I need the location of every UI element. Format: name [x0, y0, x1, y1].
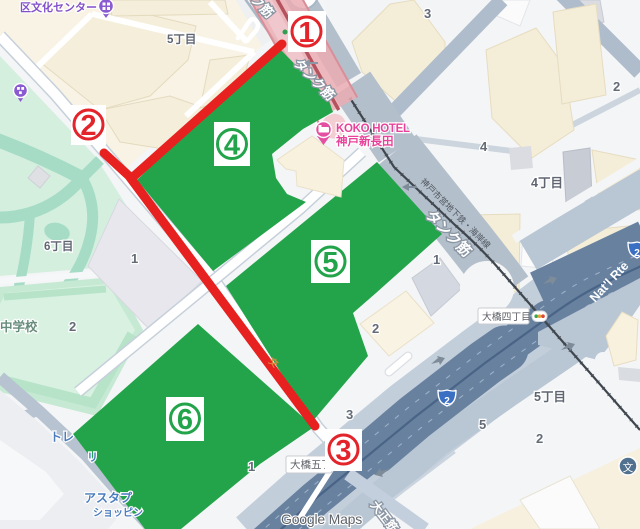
svg-text:2: 2 — [372, 321, 379, 336]
svg-text:Google Maps: Google Maps — [281, 511, 362, 527]
svg-text:2: 2 — [613, 79, 620, 94]
svg-text:1: 1 — [433, 252, 440, 267]
svg-text:1: 1 — [248, 459, 255, 474]
svg-text:2: 2 — [634, 248, 640, 259]
svg-text:リ: リ — [87, 451, 98, 464]
svg-text:4: 4 — [480, 139, 488, 154]
svg-text:大橋四丁目: 大橋四丁目 — [482, 310, 531, 323]
svg-text:トレ: トレ — [50, 430, 74, 444]
svg-text:神戸新長田: 神戸新長田 — [336, 134, 394, 148]
svg-text:ショッピン: ショッピン — [93, 507, 143, 519]
svg-text:KOKO HOTEL: KOKO HOTEL — [336, 123, 410, 135]
svg-text:4: 4 — [224, 130, 240, 162]
svg-text:6丁目: 6丁目 — [44, 240, 73, 253]
svg-text:2: 2 — [536, 431, 543, 446]
svg-text:6: 6 — [177, 404, 193, 436]
svg-text:文: 文 — [623, 461, 634, 474]
svg-text:2: 2 — [444, 396, 450, 407]
svg-text:3: 3 — [424, 6, 431, 21]
svg-text:5丁目: 5丁目 — [167, 33, 196, 46]
svg-text:5丁目: 5丁目 — [534, 390, 566, 404]
svg-text:3: 3 — [346, 407, 353, 422]
svg-text:アスタプ: アスタプ — [84, 490, 133, 505]
svg-text:1: 1 — [131, 251, 138, 266]
svg-text:2: 2 — [80, 110, 96, 142]
svg-text:5: 5 — [322, 247, 338, 279]
svg-text:5: 5 — [479, 417, 486, 432]
svg-text:区文化センター: 区文化センター — [20, 0, 97, 14]
svg-text:1: 1 — [298, 17, 314, 49]
svg-text:2: 2 — [69, 319, 76, 334]
svg-text:4丁目: 4丁目 — [531, 176, 563, 190]
svg-text:3: 3 — [335, 435, 351, 467]
svg-text:中学校: 中学校 — [0, 319, 38, 334]
